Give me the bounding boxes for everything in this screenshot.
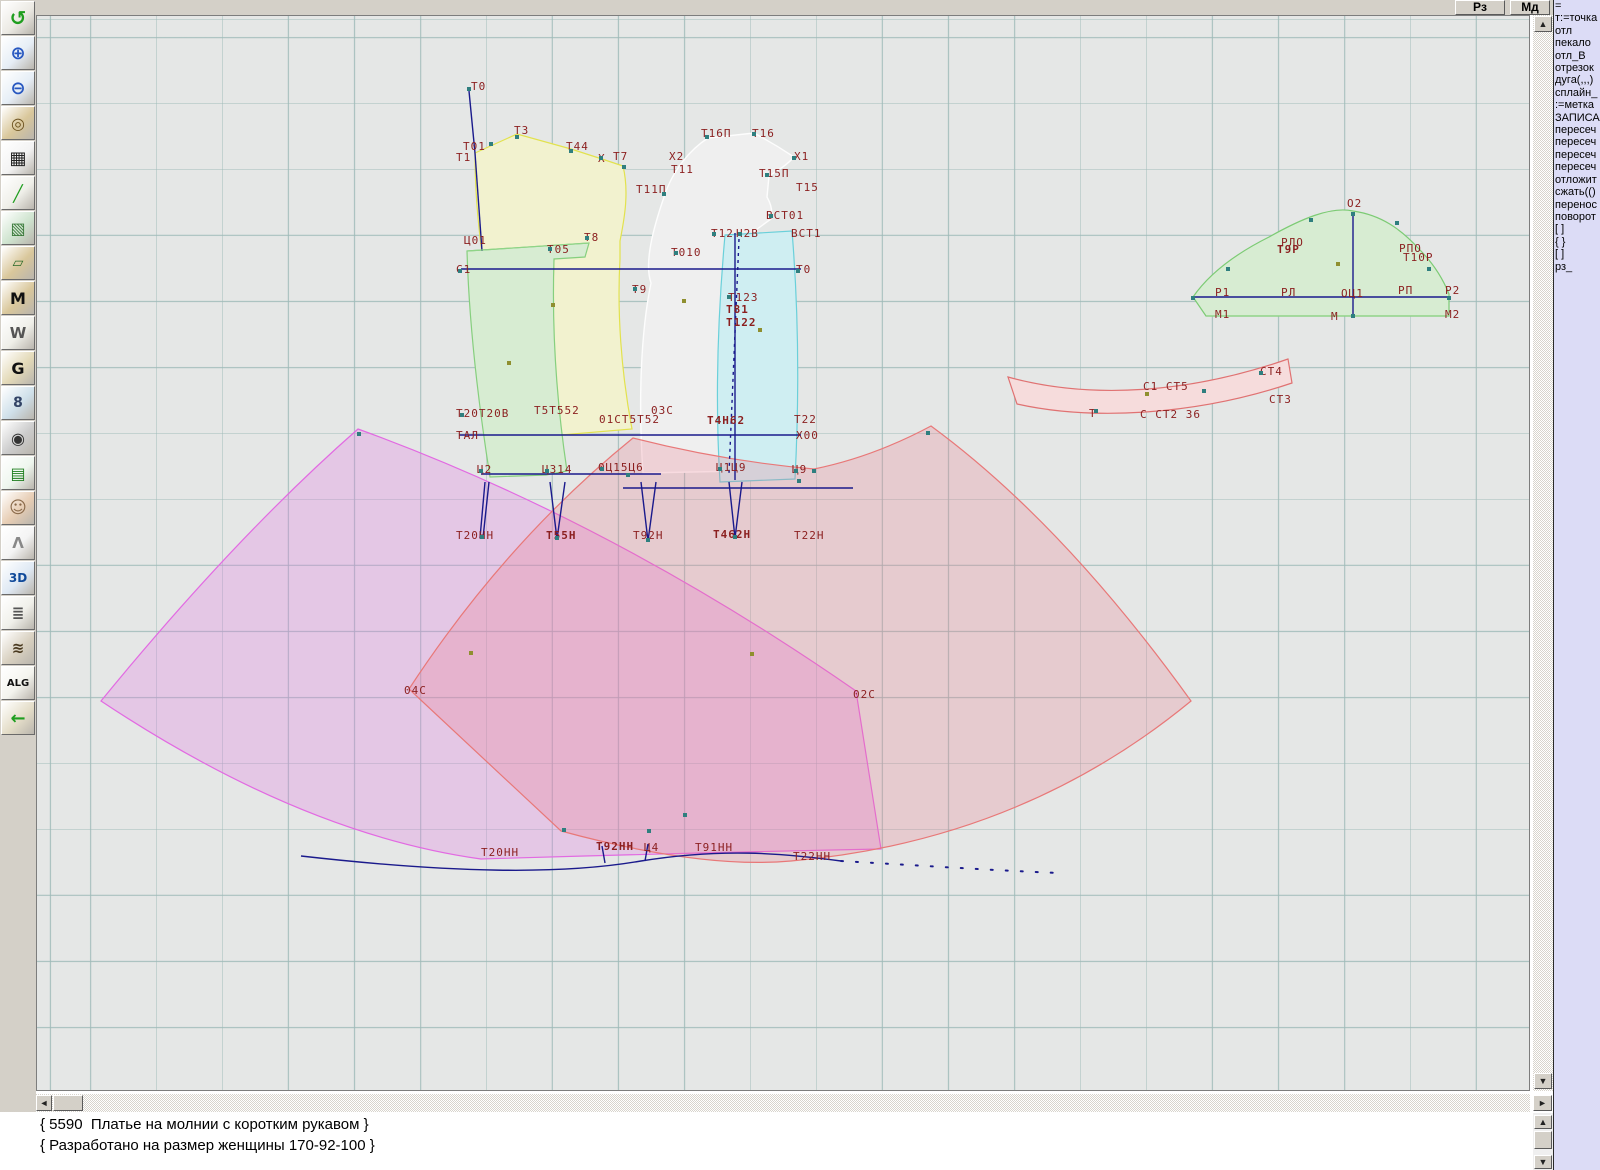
md-mode-button[interactable]: Мд	[1510, 0, 1550, 15]
pattern-point	[752, 132, 756, 136]
point-label: ВСТ1	[791, 228, 822, 239]
comment-scroll-down-button[interactable]: ▼	[1534, 1155, 1552, 1169]
pattern-point	[712, 232, 716, 236]
pattern-point	[467, 87, 471, 91]
scroll-left-icon: ◄	[40, 1098, 49, 1108]
pattern-point	[765, 173, 769, 177]
pattern-point	[727, 295, 731, 299]
point-label: С СТ2 36	[1140, 409, 1201, 420]
zoom-in-icon: ⊕	[10, 43, 25, 64]
pattern-point	[1427, 267, 1431, 271]
pattern-point	[647, 829, 651, 833]
command-line: сжать(()	[1554, 186, 1600, 198]
pattern-point	[489, 142, 493, 146]
pattern-point	[458, 269, 462, 273]
undo-button[interactable]: ↺	[1, 1, 35, 35]
pattern-point	[674, 251, 678, 255]
command-line: поворот	[1554, 211, 1600, 223]
books-button[interactable]: ≋	[1, 631, 35, 665]
pattern-point	[705, 135, 709, 139]
point-label: Т7	[613, 151, 628, 162]
exit-button[interactable]: ←	[1, 701, 35, 735]
comment-scroll-down-icon: ▼	[1539, 1157, 1548, 1167]
point-label: Т15	[796, 182, 819, 193]
point-label: Т81	[726, 304, 749, 315]
pattern-point	[769, 214, 773, 218]
3d-icon: 3D	[9, 571, 27, 585]
grid-button[interactable]: ▦	[1, 141, 35, 175]
pattern-point	[1191, 296, 1195, 300]
command-line: ЗАПИСА	[1554, 112, 1600, 124]
pattern-point	[1395, 221, 1399, 225]
pattern-g-icon: G	[11, 359, 24, 378]
command-line: [ ]	[1554, 248, 1600, 260]
pattern-point	[1447, 296, 1451, 300]
leko-pattern-app: ↺⊕⊖◎▦╱▧▱MWG8◉▤☺Λ3D≣≋ALG← Рз Мд	[0, 0, 1600, 1170]
reference-point	[758, 328, 762, 332]
scroll-right-icon: ►	[1538, 1098, 1547, 1108]
undo-icon: ↺	[10, 6, 27, 30]
point-label: РП	[1398, 285, 1413, 296]
notes-button[interactable]: ≣	[1, 596, 35, 630]
reference-point	[750, 652, 754, 656]
zoom-out-button[interactable]: ⊖	[1, 71, 35, 105]
pattern-m-button[interactable]: M	[1, 281, 35, 315]
pattern-point	[792, 156, 796, 160]
point-label: Т4Н62	[707, 415, 745, 426]
command-line: [ ]	[1554, 223, 1600, 235]
point-label: Т92НН	[596, 841, 634, 852]
point-label: О2	[1347, 198, 1362, 209]
model-photo-icon: ☺	[9, 498, 27, 518]
point-label: Т9Р	[1277, 244, 1300, 255]
spreadsheet-icon: ▤	[10, 464, 25, 483]
pattern-point	[662, 192, 666, 196]
scroll-down-button[interactable]: ▼	[1534, 1073, 1552, 1089]
pattern-point	[646, 538, 650, 542]
pattern-point	[718, 467, 722, 471]
point-label: Т20Т20В	[456, 408, 509, 419]
point-label: Ц4	[644, 842, 659, 853]
canvas-horizontal-scrollbar[interactable]: ◄	[36, 1094, 1530, 1112]
point-label: Т10Р	[1403, 252, 1434, 263]
spreadsheet-button[interactable]: ▤	[1, 456, 35, 490]
command-line: =	[1554, 0, 1600, 12]
exit-icon: ←	[10, 708, 25, 729]
pattern-point	[1226, 267, 1230, 271]
pattern-point	[357, 432, 361, 436]
point-label: Т0	[471, 81, 486, 92]
point-label: Т122	[726, 317, 757, 328]
pattern-point	[569, 149, 573, 153]
canvas-vertical-scrollbar[interactable]: ▲ ▼	[1533, 15, 1553, 1091]
pattern-point	[622, 165, 626, 169]
point-label: С1 СТ5	[1143, 381, 1189, 392]
pattern-point	[600, 467, 604, 471]
comment-scroll-thumb[interactable]	[1534, 1131, 1552, 1149]
point-label: 04С	[404, 685, 427, 696]
point-label: 01СТ5Т52	[599, 414, 660, 425]
scroll-up-icon: ▲	[1539, 19, 1548, 29]
top-bar: Рз Мд	[36, 0, 1553, 15]
command-line: отл	[1554, 25, 1600, 37]
comment-line-1: { 5590 Платье на молнии с коротким рукав…	[40, 1116, 369, 1133]
reference-point	[1336, 262, 1340, 266]
image-icon: ▧	[10, 219, 25, 238]
command-line: :=метка	[1554, 99, 1600, 111]
point-label: Т91НН	[695, 842, 733, 853]
command-line: пересеч	[1554, 161, 1600, 173]
command-line: пересеч	[1554, 124, 1600, 136]
pattern-point	[683, 813, 687, 817]
point-label: М1	[1215, 309, 1230, 320]
point-label: СТ3	[1269, 394, 1292, 405]
pattern-point	[480, 535, 484, 539]
point-label: Т1	[456, 152, 471, 163]
pattern-g-button[interactable]: G	[1, 351, 35, 385]
point-label: Т22НН	[793, 851, 831, 862]
scroll-left-button[interactable]: ◄	[36, 1095, 52, 1111]
pattern-point	[796, 269, 800, 273]
point-label: Т22	[794, 414, 817, 425]
zoom-in-button[interactable]: ⊕	[1, 36, 35, 70]
point-label: Х2	[669, 151, 684, 162]
point-label: Т11	[671, 164, 694, 175]
ruler-icon: 8	[13, 395, 23, 411]
reference-point	[469, 651, 473, 655]
point-label: ТАЛ	[456, 430, 479, 441]
measure-line-button[interactable]: ╱	[1, 176, 35, 210]
command-line: отл_В	[1554, 50, 1600, 62]
point-label: ОЦ1	[1341, 288, 1364, 299]
camera-button[interactable]: ◉	[1, 421, 35, 455]
pattern-canvas[interactable]: Т0Т3Т01Т1Т44XТ7Т16ПТ16Х2Х1Т11Т15ПТ11ПТ15…	[36, 15, 1530, 1091]
command-line: т:=точка	[1554, 12, 1600, 24]
point-label: Т123	[728, 292, 759, 303]
books-icon: ≋	[12, 639, 25, 657]
left-toolbar: ↺⊕⊖◎▦╱▧▱MWG8◉▤☺Λ3D≣≋ALG←	[0, 0, 36, 1170]
pattern-point	[479, 469, 483, 473]
command-line: сплайн_	[1554, 87, 1600, 99]
point-label: СТ4	[1260, 366, 1283, 377]
pattern-point	[1351, 212, 1355, 216]
pattern-point	[545, 469, 549, 473]
pattern-point	[812, 469, 816, 473]
pattern-point	[548, 247, 552, 251]
image-button[interactable]: ▧	[1, 211, 35, 245]
command-line: рз_	[1554, 261, 1600, 273]
3d-button[interactable]: 3D	[1, 561, 35, 595]
measure-line-icon: ╱	[13, 184, 23, 203]
pattern-point	[797, 479, 801, 483]
pattern-point	[733, 535, 737, 539]
command-line: перенос	[1554, 199, 1600, 211]
point-label: Х1	[794, 151, 809, 162]
pattern-point	[555, 536, 559, 540]
alg-icon: ALG	[7, 678, 29, 689]
reference-point	[1145, 392, 1149, 396]
alg-button[interactable]: ALG	[1, 666, 35, 700]
comment-scroll-up-icon: ▲	[1539, 1117, 1548, 1127]
pattern-point	[1094, 409, 1098, 413]
rz-mode-button[interactable]: Рз	[1455, 0, 1505, 15]
point-label: РЛ	[1281, 287, 1296, 298]
command-line: пекало	[1554, 37, 1600, 49]
pattern-point	[738, 232, 742, 236]
pattern-point	[585, 236, 589, 240]
point-label: Т20НН	[456, 530, 494, 541]
ruler-button[interactable]: 8	[1, 386, 35, 420]
point-label: 0Ц15Ц6	[598, 462, 644, 473]
point-label: 02С	[853, 689, 876, 700]
point-label: Т22Н	[794, 530, 825, 541]
notes-icon: ≣	[12, 604, 25, 622]
pattern-point	[1309, 218, 1313, 222]
command-line: отрезок	[1554, 62, 1600, 74]
point-label: Р2	[1445, 285, 1460, 296]
comment-scroll-up-button[interactable]: ▲	[1534, 1115, 1552, 1129]
pattern-point	[599, 156, 603, 160]
pattern-point	[1351, 314, 1355, 318]
pattern-piece-icon: ▱	[13, 255, 24, 271]
pattern-point	[562, 828, 566, 832]
pattern-point	[460, 413, 464, 417]
pattern-point	[515, 135, 519, 139]
comment-line-2: { Разработано на размер женщины 170-92-1…	[40, 1137, 375, 1154]
command-line: отложит	[1554, 174, 1600, 186]
drafting-tools-icon: W	[10, 324, 27, 342]
point-label: Ц01	[464, 235, 487, 246]
drafting-tools-button[interactable]: W	[1, 316, 35, 350]
pattern-point	[1202, 389, 1206, 393]
point-label: Т5Т552	[534, 405, 580, 416]
point-label: Т20НН	[481, 847, 519, 858]
point-label: Х00	[796, 430, 819, 441]
scroll-right-button[interactable]: ►	[1533, 1095, 1552, 1111]
pattern-point	[926, 431, 930, 435]
camera-icon: ◉	[11, 429, 25, 448]
pattern-point	[1259, 371, 1263, 375]
garment-button[interactable]: Λ	[1, 526, 35, 560]
reference-point	[507, 361, 511, 365]
pattern-m-icon: M	[10, 289, 26, 308]
point-label: Т55Н	[546, 530, 577, 541]
pattern-preview-icon: ◎	[11, 114, 25, 133]
command-line: дуга(,,,)	[1554, 74, 1600, 86]
point-label: М	[1331, 311, 1339, 322]
zoom-out-icon: ⊖	[10, 78, 25, 99]
command-line: пересеч	[1554, 136, 1600, 148]
pattern-point	[794, 469, 798, 473]
model-photo-button[interactable]: ☺	[1, 491, 35, 525]
garment-icon: Λ	[12, 534, 24, 552]
pattern-preview-button[interactable]: ◎	[1, 106, 35, 140]
comment-area[interactable]: { 5590 Платье на молнии с коротким рукав…	[0, 1112, 1533, 1170]
pattern-point	[626, 473, 630, 477]
reference-point	[682, 299, 686, 303]
reference-point	[551, 303, 555, 307]
command-line: { }	[1554, 236, 1600, 248]
scroll-up-button[interactable]: ▲	[1534, 16, 1552, 32]
horizontal-scroll-thumb[interactable]	[53, 1095, 83, 1111]
skirt-front-piece[interactable]	[409, 426, 1191, 862]
grid-icon: ▦	[9, 148, 26, 169]
command-line: пересеч	[1554, 149, 1600, 161]
point-label: Т15П	[759, 168, 790, 179]
comment-scrollbar[interactable]: ▲ ▼	[1533, 1113, 1553, 1170]
scroll-down-icon: ▼	[1539, 1076, 1548, 1086]
command-panel[interactable]: =т:=точкаотлпекалоотл_Вотрезокдуга(,,,)с…	[1553, 0, 1600, 1170]
point-label: М2	[1445, 309, 1460, 320]
pattern-piece-button[interactable]: ▱	[1, 246, 35, 280]
point-label: Р1	[1215, 287, 1230, 298]
pattern-point	[633, 287, 637, 291]
